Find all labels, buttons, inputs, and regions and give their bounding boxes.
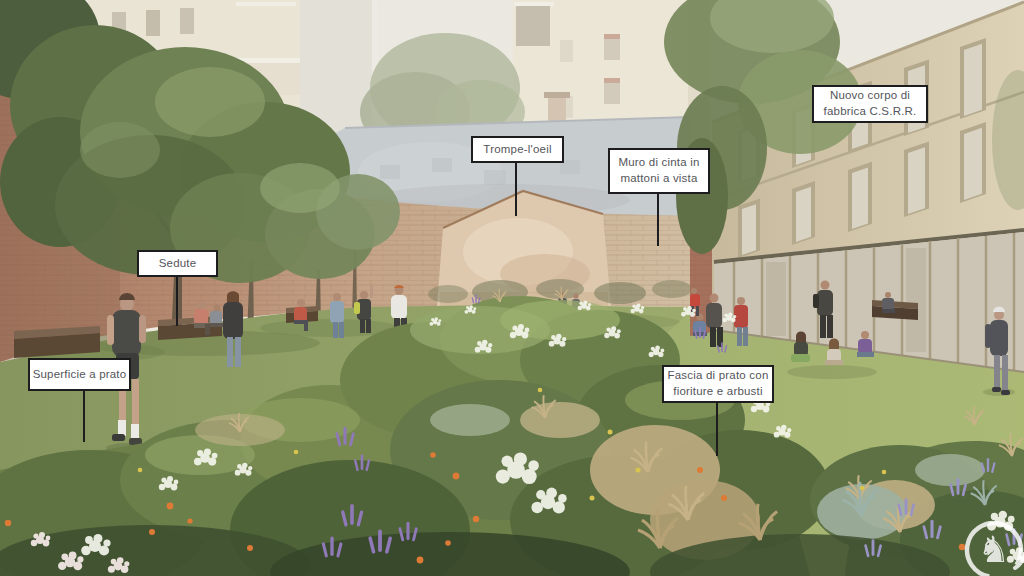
label-nuovo-corpo: Nuovo corpo di fabbrica C.S.R.R. xyxy=(812,85,928,123)
leader-line xyxy=(176,277,178,326)
label-trompe-loeil: Trompe-l'oeil xyxy=(471,136,564,163)
leader-line xyxy=(83,391,85,442)
leader-line xyxy=(657,194,659,246)
horse-emblem-icon: ♞ xyxy=(960,516,1024,576)
label-sedute: Sedute xyxy=(137,250,218,277)
svg-text:♞: ♞ xyxy=(978,529,1010,570)
leader-line xyxy=(716,403,718,456)
leader-line xyxy=(515,163,517,216)
label-muro-di-cinta: Muro di cinta in mattoni a vista xyxy=(608,148,710,194)
label-fascia-di-prato: Fascia di prato con fioriture e arbusti xyxy=(662,365,774,403)
architectural-rendering-page: Sedute Trompe-l'oeil Muro di cinta in ma… xyxy=(0,0,1024,576)
label-superficie-a-prato: Superficie a prato xyxy=(28,358,131,391)
